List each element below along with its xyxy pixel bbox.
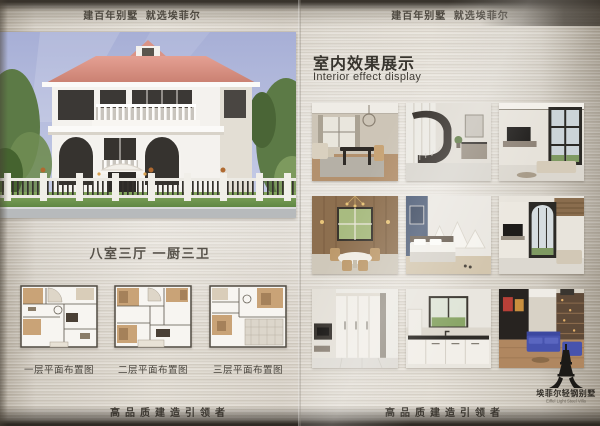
metal-top-right-shade — [480, 0, 600, 26]
floor-plan-3-drawing — [209, 285, 287, 348]
brochure-page: 建百年别墅 就选埃菲尔 建百年别墅 就选埃菲尔 — [0, 0, 600, 426]
eiffel-tower-icon — [546, 344, 586, 388]
villa-caption: 八室三厅 一厨三卫 — [50, 243, 250, 262]
interior-photo-wardrobe-hallway — [312, 289, 398, 368]
brand-name-cn: 埃菲尔轻钢别墅 — [533, 388, 599, 399]
brand-name-en: Eiffel Light Steel Villa — [538, 399, 594, 404]
interior-photo-tall-window-living-room — [499, 196, 584, 274]
metal-left-edge-shade — [0, 0, 8, 426]
interior-photo-kitchen — [406, 289, 491, 368]
interior-photo-grid — [312, 103, 586, 368]
interior-photo-wood-panel-dining-room — [312, 196, 398, 274]
section-title-en: Interior effect display — [313, 71, 421, 83]
interior-photo-double-height-living-room — [499, 103, 584, 181]
floor-plan-label: 二层平面布置图 — [114, 362, 192, 376]
brand-logo: 埃菲尔轻钢别墅 Eiffel Light Steel Villa — [533, 344, 599, 405]
floor-plan-1-drawing — [20, 285, 98, 348]
floor-plan-label: 一层平面布置图 — [20, 362, 98, 376]
interior-photo-staircase-hall — [406, 103, 491, 181]
page-fold-seam — [298, 0, 301, 426]
floor-plan-level-1: 一层平面布置图 — [20, 285, 98, 376]
villa-exterior-photo — [0, 32, 296, 218]
floor-plan-label: 三层平面布置图 — [209, 362, 287, 376]
villa-illustration — [0, 32, 296, 218]
interior-photo-living-dining-room — [312, 103, 398, 181]
floor-plan-level-2: 二层平面布置图 — [114, 285, 192, 376]
floor-plan-2-drawing — [114, 285, 192, 348]
interior-photo-bedroom-blue-accent — [406, 196, 491, 274]
floor-plan-level-3: 三层平面布置图 — [209, 285, 287, 376]
